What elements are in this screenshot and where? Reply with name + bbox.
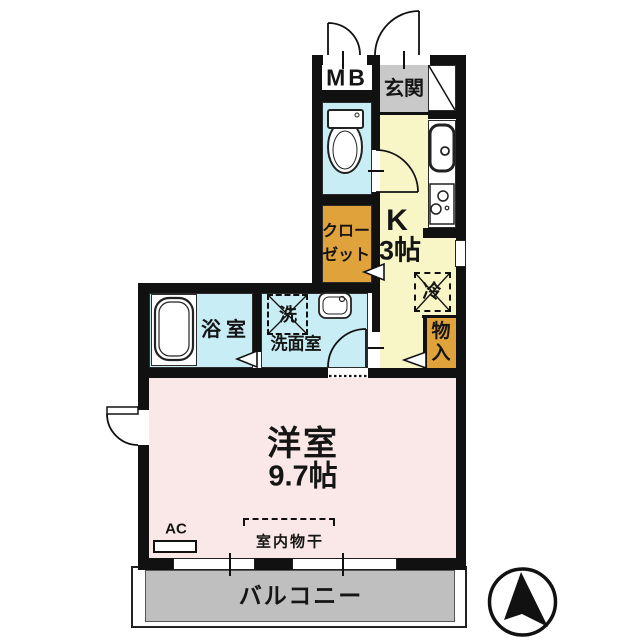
washbasin-icon xyxy=(319,293,351,318)
balcony-label: バルコニー xyxy=(239,585,364,608)
washroom-label: 洗面室 xyxy=(271,336,322,353)
kitchen-size-label: 3帖 xyxy=(379,238,421,265)
door-triangle-storage xyxy=(404,352,426,368)
storage-label: 物入 xyxy=(430,321,452,365)
toilet-icon xyxy=(328,110,363,173)
closet-label-line1: クロー xyxy=(322,224,370,240)
floor-plan: MB 玄関 K 3帖 クロー ゼット 冷 物入 浴室 洗 洗面室 洋室 9.7帖… xyxy=(0,0,640,640)
bathroom-label: 浴室 xyxy=(201,320,251,340)
bathtub-icon xyxy=(155,298,193,360)
door-arc-side xyxy=(107,414,138,445)
meter-box-label: MB xyxy=(326,67,368,90)
door-arc-entrance xyxy=(375,11,419,55)
door-triangle-bathroom xyxy=(237,351,257,367)
entrance-label: 玄関 xyxy=(384,79,424,99)
air-conditioner-label: AC xyxy=(165,522,187,537)
closet-label-line2: ゼット xyxy=(322,248,370,264)
indoor-drying-label: 室内物干 xyxy=(256,535,324,550)
door-triangle-closet xyxy=(364,264,384,280)
kitchen-sink-icon xyxy=(430,125,454,171)
door-arc-washroom xyxy=(328,329,366,367)
door-arc-meter-box xyxy=(328,23,360,55)
north-arrow-icon xyxy=(490,569,556,635)
kitchen-label: K xyxy=(386,206,408,236)
side-door-leaf xyxy=(107,407,138,414)
washer-label: 洗 xyxy=(279,306,297,324)
shoe-cabinet-diagonal xyxy=(429,66,455,110)
refrigerator-label: 冷 xyxy=(422,283,441,302)
western-room-size-label: 9.7帖 xyxy=(268,463,337,492)
western-room-label: 洋室 xyxy=(267,427,339,461)
stove-icon xyxy=(430,184,454,224)
